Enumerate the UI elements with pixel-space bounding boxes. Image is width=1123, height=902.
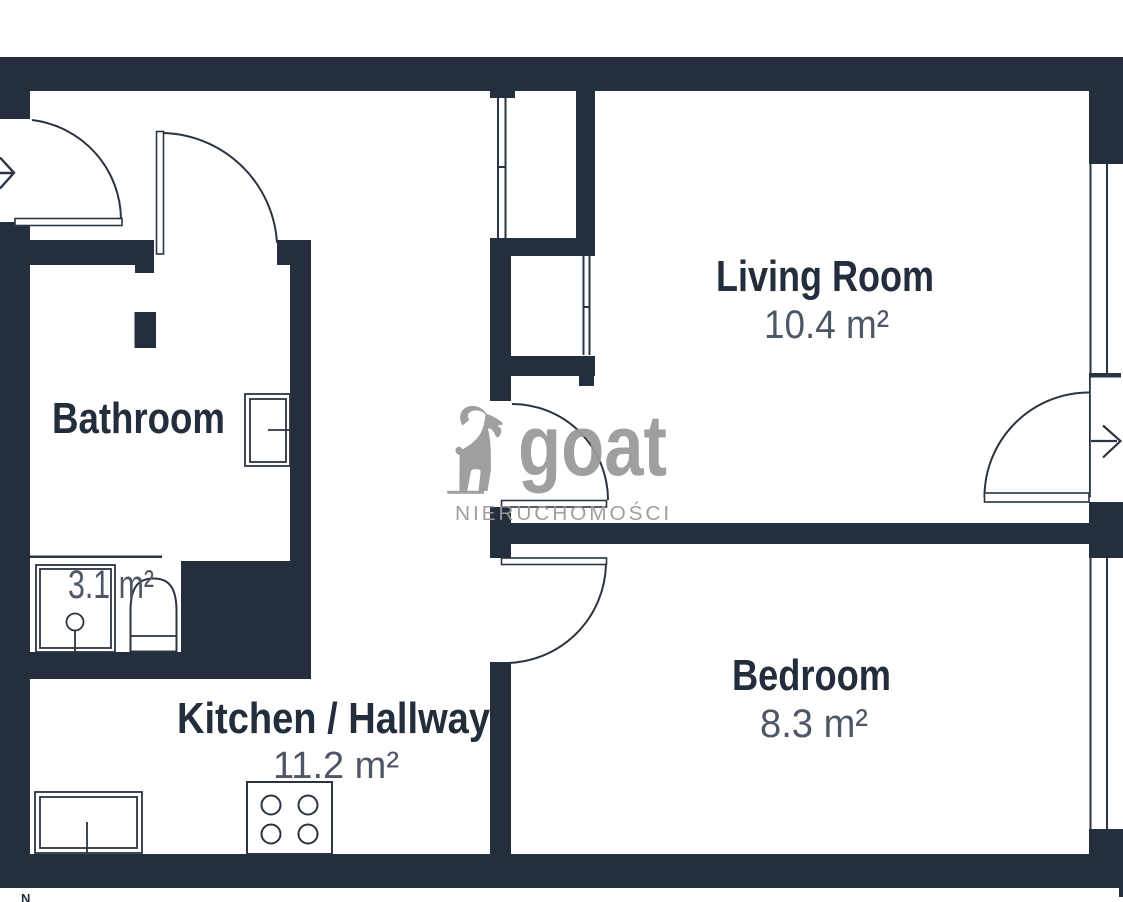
- svg-text:3.1 m²: 3.1 m²: [68, 563, 154, 607]
- svg-text:Living Room: Living Room: [716, 252, 934, 301]
- svg-text:11.2 m²: 11.2 m²: [273, 745, 399, 787]
- svg-text:10.4 m²: 10.4 m²: [764, 303, 889, 347]
- svg-text:Kitchen / Hallway: Kitchen / Hallway: [177, 694, 490, 743]
- svg-text:Bathroom: Bathroom: [52, 394, 225, 443]
- svg-text:NIERUCHOMOŚCI: NIERUCHOMOŚCI: [455, 501, 672, 525]
- svg-text:Bedroom: Bedroom: [732, 651, 891, 700]
- svg-text:N: N: [21, 891, 30, 902]
- svg-text:goat: goat: [518, 398, 667, 494]
- svg-text:8.3 m²: 8.3 m²: [760, 702, 868, 746]
